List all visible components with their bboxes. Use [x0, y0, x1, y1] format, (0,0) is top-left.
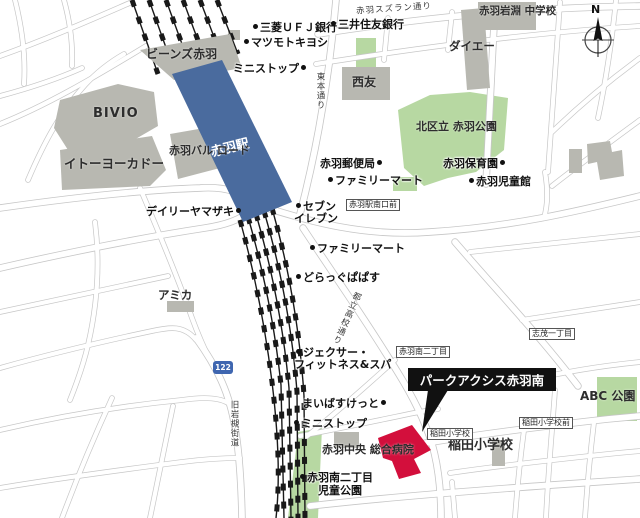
- poi-dot: [301, 65, 306, 70]
- poi-akabane-jidokan: 赤羽児童館: [467, 176, 531, 188]
- poi-dot: [300, 474, 305, 479]
- inada-elementary-label: 稲田小学校: [448, 439, 513, 452]
- poi-ministop-south: ミニストップ: [292, 418, 367, 430]
- poi-seven-eleven: セブン イレブン: [294, 201, 338, 225]
- bivio-label: BIVIO: [93, 107, 139, 120]
- street-higashihon-dori: 東本通り: [314, 72, 326, 110]
- property-callout: パークアクシス赤羽南: [408, 368, 556, 391]
- poi-dot: [381, 400, 386, 405]
- daiei-label: ダイエー: [449, 40, 495, 53]
- poi-familymart-south: ファミリーマート: [308, 243, 405, 255]
- busstop-inada-shogakko: 稲田小学校: [427, 428, 473, 440]
- amica-label: アミカ: [158, 289, 192, 302]
- busstop-shimo-1chome: 志茂一丁目: [529, 328, 575, 340]
- ito-yokado-label: イトーヨーカドー: [64, 157, 164, 170]
- compass-north-label: N: [591, 3, 600, 16]
- poi-akabane-post-office: 赤羽郵便局: [320, 158, 384, 170]
- poi-akabane-hoikuen: 赤羽保育園: [443, 158, 507, 170]
- poi-dot: [294, 420, 299, 425]
- poi-dot: [310, 245, 315, 250]
- poi-dot: [296, 349, 301, 354]
- hospital-label: 赤羽中央 総合病院: [322, 444, 378, 456]
- busstop-inada-shogakko-mae: 稲田小学校前: [519, 417, 573, 429]
- poi-mufg-bank: 三菱ＵＦＪ銀行: [251, 22, 337, 34]
- poi-jexer-fitness: ジェクサー・ フィットネス&スパ: [294, 347, 391, 370]
- poi-matsumoto-kiyoshi: マツモトキヨシ: [242, 37, 328, 49]
- map: N 赤羽スズラン通り 東本通り 都立高校通り 旧岩槻街道 122 ビーンズ赤羽 …: [0, 0, 640, 518]
- poi-dot: [253, 24, 258, 29]
- seiyu-label: 西友: [352, 76, 376, 89]
- poi-dot: [244, 39, 249, 44]
- poi-familymart-north: ファミリーマート: [326, 175, 423, 187]
- kitakuritsu-akabane-park-label: 北区立 赤羽公園: [416, 120, 480, 133]
- iwabuchi-junior-high-label: 赤羽岩淵 中学校: [479, 5, 537, 17]
- poi-dot: [296, 274, 301, 279]
- busstop-akabane-minamiguchi: 赤羽駅南口前: [346, 199, 400, 211]
- poi-daily-yamazaki: デイリーヤマザキ: [146, 206, 243, 218]
- poi-dot: [377, 160, 382, 165]
- poi-dot: [469, 178, 474, 183]
- busstop-akabane-minami-2chome: 赤羽南二丁目: [396, 346, 450, 358]
- poi-dot: [500, 160, 505, 165]
- poi-dot: [328, 177, 333, 182]
- poi-jido-park: 赤羽南二丁目 児童公園: [298, 472, 373, 497]
- poi-drug-papasu: どらっぐぱぱす: [294, 272, 380, 284]
- poi-dot: [236, 208, 241, 213]
- poi-smbc-bank: 三井住友銀行: [329, 19, 404, 31]
- beans-akabane-label: ビーンズ赤羽: [146, 48, 217, 61]
- abc-park-label: ABC 公園: [580, 390, 635, 403]
- poi-dot: [296, 203, 301, 208]
- street-kyu-iwatsuki-kaido: 旧岩槻街道: [228, 400, 240, 448]
- poi-maibasuketto: まいばすけっと: [302, 398, 388, 410]
- akabane-bar-road-label: 赤羽バル ロード: [169, 145, 250, 157]
- poi-dot: [331, 21, 336, 26]
- route-122-badge: 122: [213, 361, 233, 374]
- poi-ministop-north: ミニストップ: [233, 63, 308, 75]
